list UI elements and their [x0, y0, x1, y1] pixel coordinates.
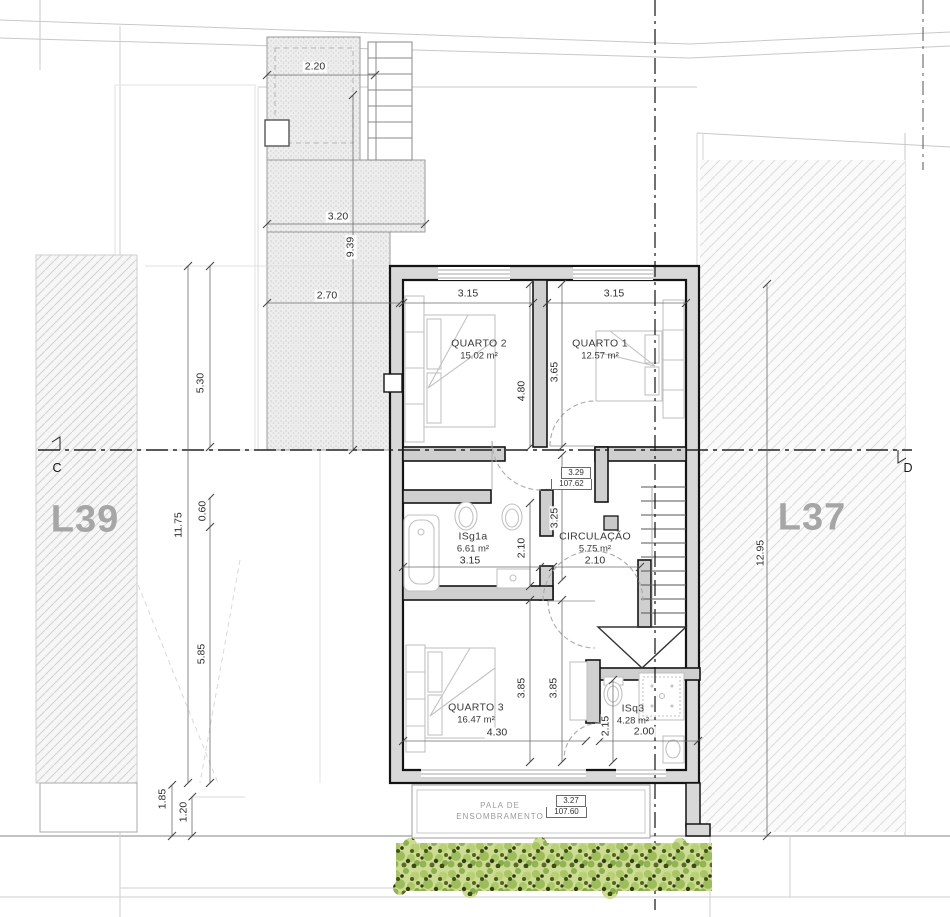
- neighbor-hatch-right: [700, 160, 905, 832]
- vegetation-strip: [393, 837, 712, 899]
- plan-linework: [0, 0, 950, 917]
- neighbor-hatch-left: [36, 255, 137, 783]
- terrace-ladder: [368, 42, 412, 160]
- sink-isq3: [663, 736, 684, 763]
- floor-plan-canvas: L39 L37 C D 3.29 107.62 3.27 107.60 PALA…: [0, 0, 950, 917]
- bed-quarto3: [406, 645, 587, 752]
- bed-quarto1: [596, 300, 684, 418]
- bathtub: [404, 515, 439, 591]
- shower-isq3: [639, 673, 684, 720]
- sinks-isg1a: [455, 502, 530, 588]
- toilet-isq3: [604, 677, 623, 706]
- pala-canopy: [412, 785, 650, 838]
- bed-quarto2: [405, 296, 495, 442]
